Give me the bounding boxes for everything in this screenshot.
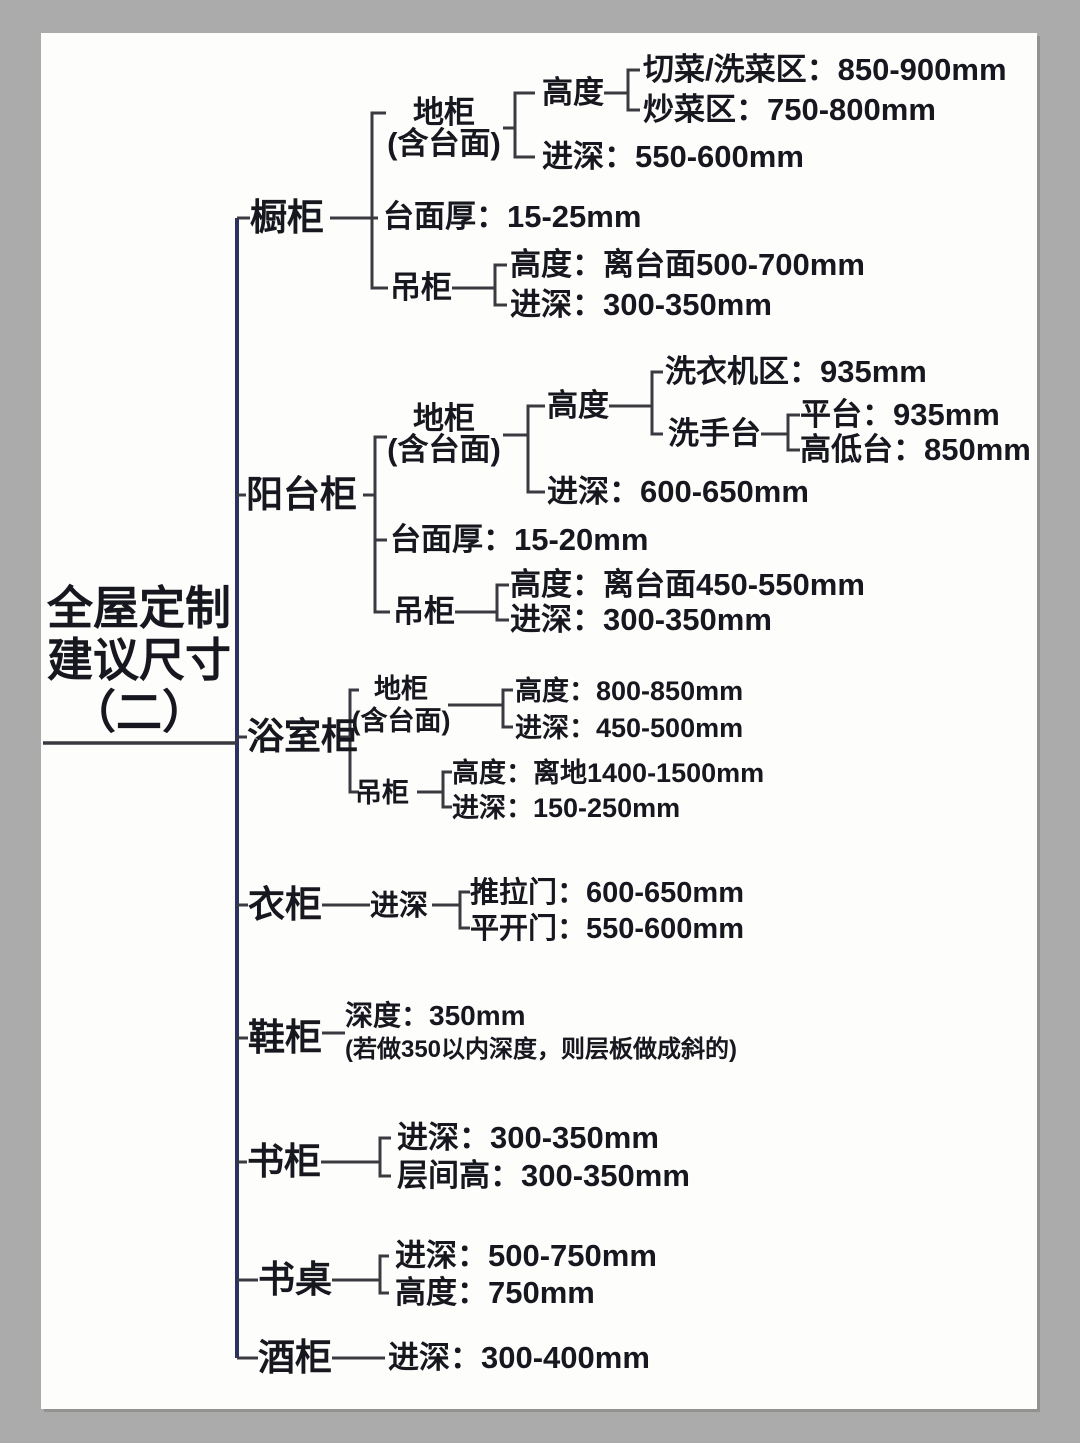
- root-title-line1: 全屋定制: [43, 582, 235, 634]
- value-yigui-tuilamen: 推拉门：600-650mm: [470, 876, 744, 910]
- root-title-line3: （二）: [43, 686, 235, 738]
- value-chugui-taimianhou: 台面厚：15-25mm: [383, 199, 641, 235]
- trunk-stubs: [237, 218, 258, 1358]
- node-yushigui-digui: 地柜 (含台面): [343, 673, 459, 737]
- node-chugui-digui-line2: (含台面): [381, 128, 507, 159]
- value-chugui-digui-jinshen: 进深：550-600mm: [542, 139, 804, 175]
- node-yangtaigui-digui-line2: (含台面): [381, 434, 507, 465]
- node-chugui-digui: 地柜 (含台面): [381, 97, 507, 159]
- shugui-connectors: [321, 1138, 391, 1176]
- value-yangtaigui-gaoditai: 高低台：850mm: [800, 432, 1031, 468]
- node-yushigui-digui-line1: 地柜: [343, 673, 459, 705]
- value-yangtaigui-diaogui-gaodu: 高度：离台面450-550mm: [510, 567, 865, 603]
- value-yangtaigui-pingtai: 平台：935mm: [800, 397, 1000, 433]
- branch-label-yigui: 衣柜: [248, 884, 322, 926]
- root-title: 全屋定制 建议尺寸 （二）: [43, 582, 235, 738]
- node-chugui-diaogui: 吊柜: [390, 270, 452, 306]
- node-yushigui-digui-line2: (含台面): [343, 705, 459, 737]
- value-chugui-diaogui-gaodu: 高度：离台面500-700mm: [510, 247, 865, 283]
- node-yangtaigui-digui-line1: 地柜: [381, 403, 507, 434]
- value-xiegui-shendu: 深度：350mm: [345, 999, 526, 1032]
- branch-label-shuzhuo: 书桌: [258, 1259, 332, 1301]
- node-chugui-gaodu: 高度: [542, 75, 604, 111]
- branch-label-yushigui: 浴室柜: [247, 716, 358, 758]
- branch-label-chugui: 橱柜: [250, 197, 324, 239]
- value-shugui-jinshen: 进深：300-350mm: [397, 1120, 659, 1156]
- value-chugui-diaogui-jinshen: 进深：300-350mm: [510, 287, 772, 323]
- branch-label-jiugui: 酒柜: [258, 1337, 332, 1379]
- value-chugui-qiecai: 切菜/洗菜区：850-900mm: [643, 52, 1007, 88]
- node-yangtaigui-diaogui: 吊柜: [393, 594, 455, 630]
- node-yangtaigui-xishoutai: 洗手台: [668, 416, 761, 452]
- node-yangtaigui-digui: 地柜 (含台面): [381, 403, 507, 465]
- value-chugui-chaocai: 炒菜区：750-800mm: [643, 92, 936, 128]
- value-shuzhuo-gaodu: 高度：750mm: [395, 1275, 595, 1311]
- value-yangtaigui-digui-jinshen: 进深：600-650mm: [547, 474, 809, 510]
- value-yushigui-digui-jinshen: 进深：450-500mm: [515, 712, 743, 744]
- node-yangtaigui-gaodu: 高度: [547, 388, 609, 424]
- node-chugui-digui-line1: 地柜: [381, 97, 507, 128]
- mindmap-paper: 全屋定制 建议尺寸 （二） 橱柜 地柜 (含台面) 高度 切菜/洗菜区：850-…: [41, 33, 1037, 1409]
- value-yangtaigui-taimianhou: 台面厚：15-20mm: [390, 522, 648, 558]
- root-title-line2: 建议尺寸: [43, 634, 235, 686]
- branch-label-yangtaigui: 阳台柜: [246, 474, 357, 516]
- value-yushigui-digui-gaodu: 高度：800-850mm: [515, 675, 743, 707]
- branch-label-xiegui: 鞋柜: [248, 1017, 322, 1059]
- value-xiegui-note: (若做350以内深度，则层板做成斜的): [345, 1035, 737, 1065]
- node-yigui-jinshen: 进深: [370, 889, 428, 923]
- value-yangtaigui-diaogui-jinshen: 进深：300-350mm: [510, 602, 772, 638]
- value-yushigui-diaogui-jinshen: 进深：150-250mm: [452, 792, 680, 824]
- node-yushigui-diaogui: 吊柜: [355, 777, 409, 809]
- value-shugui-cengjiangao: 层间高：300-350mm: [397, 1158, 690, 1194]
- value-shuzhuo-jinshen: 进深：500-750mm: [395, 1238, 657, 1274]
- value-yushigui-diaogui-gaodu: 高度：离地1400-1500mm: [452, 757, 764, 789]
- infographic-canvas: { "colors":{ "frame_bg":"#ababab", "pape…: [0, 0, 1080, 1443]
- value-yangtaigui-xiyiji: 洗衣机区：935mm: [665, 354, 927, 390]
- shuzhuo-connectors: [332, 1256, 389, 1293]
- value-yigui-pingkaimen: 平开门：550-600mm: [470, 912, 744, 946]
- branch-label-shugui: 书柜: [247, 1141, 321, 1183]
- value-jiugui-jinshen: 进深：300-400mm: [388, 1340, 650, 1376]
